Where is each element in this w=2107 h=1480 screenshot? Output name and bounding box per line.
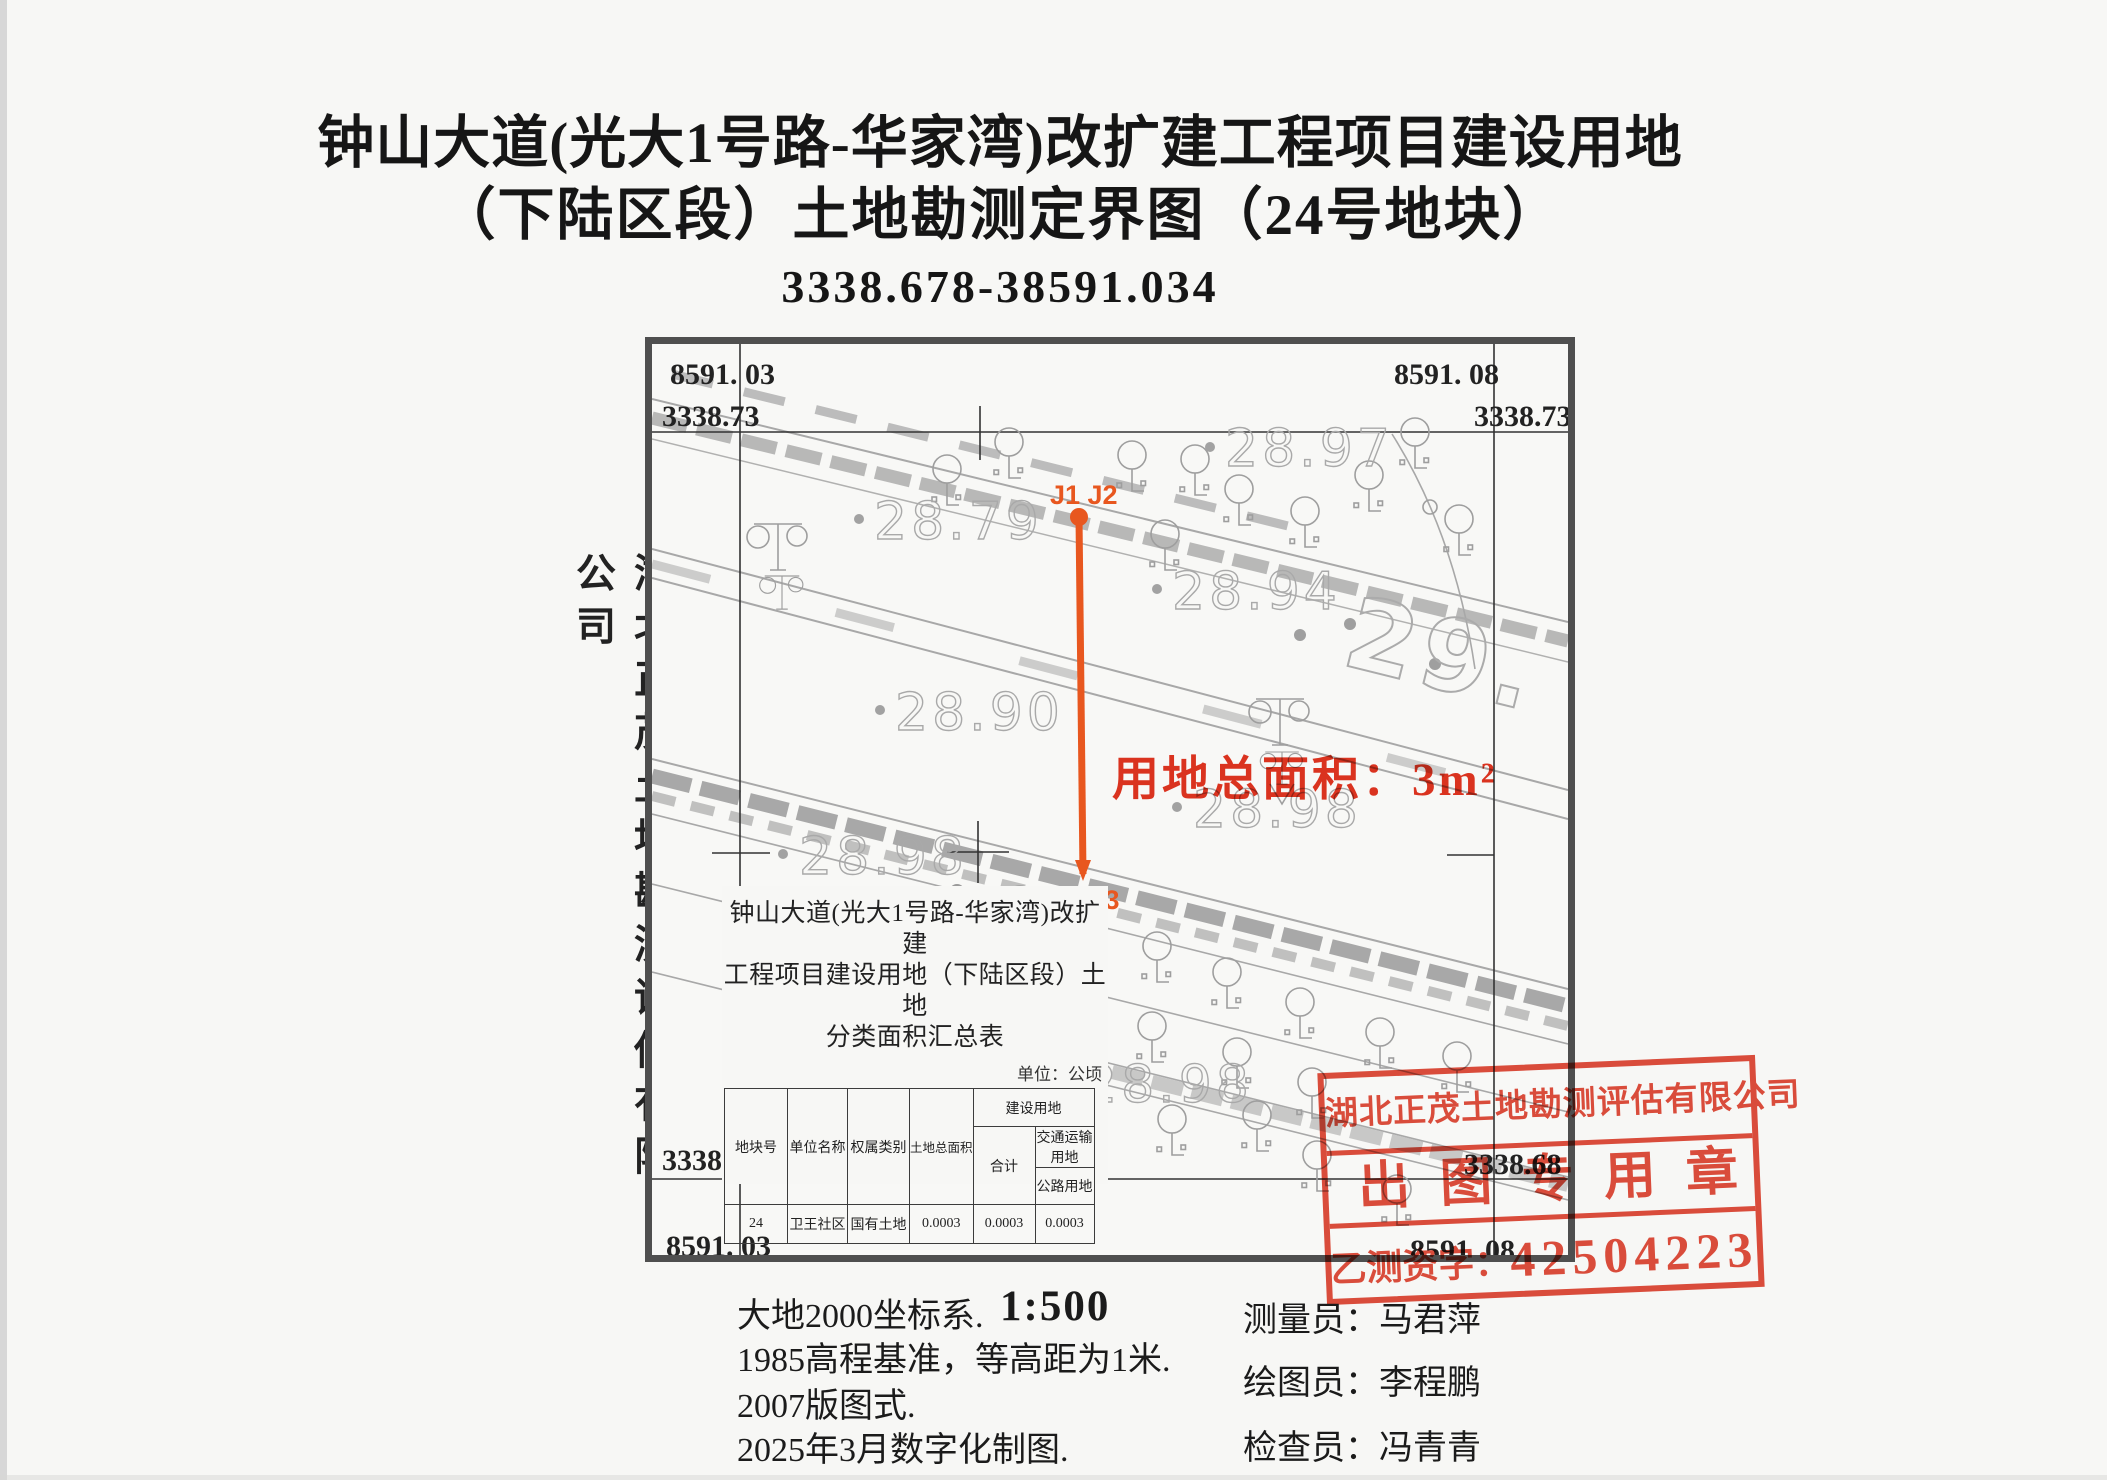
col-header-construction: 建设用地 — [973, 1089, 1094, 1127]
svg-text:28.97: 28.97 — [1225, 419, 1394, 479]
elevation-point: 28.90 — [875, 683, 1064, 743]
cell-total-area: 0.0003 — [910, 1205, 974, 1244]
corner-tr-easting: 8591. 08 — [1394, 358, 1499, 391]
svg-text:28.94: 28.94 — [1172, 562, 1341, 622]
credit-surveyor: 测量员：马君萍 — [1243, 1292, 1481, 1341]
table-title-line-2: 工程项目建设用地（下陆区段）土地 — [722, 960, 1108, 1022]
table-row: 24 卫王社区 国有土地 0.0003 0.0003 0.0003 — [725, 1205, 1095, 1244]
col-header-road: 公路用地 — [1035, 1168, 1094, 1205]
stamp-cert-number: 42504223 — [1509, 1219, 1759, 1287]
note-map-style: 2007版图式. — [737, 1378, 916, 1427]
col-header-parcel: 地块号 — [725, 1089, 788, 1205]
elevation-point: 28.97 — [1205, 419, 1394, 479]
boundary-point-label-top: J1 J2 — [1050, 480, 1118, 510]
cell-unit-name: 卫王社区 — [788, 1205, 848, 1244]
scan-edge-artifact-bottom — [0, 1475, 2107, 1480]
elevation-point: 28.94 — [1152, 562, 1341, 622]
col-header-unit-name: 单位名称 — [788, 1089, 848, 1205]
credit-checker: 检查员：冯青青 — [1243, 1420, 1481, 1469]
area-summary-block: 钟山大道(光大1号路-华家湾)改扩建 工程项目建设用地（下陆区段）土地 分类面积… — [722, 886, 1108, 1184]
cell-parcel: 24 — [725, 1205, 788, 1244]
svg-text:28.90: 28.90 — [895, 683, 1064, 743]
cell-subtotal: 0.0003 — [973, 1205, 1035, 1244]
title-line-1: 钟山大道(光大1号路-华家湾)改扩建工程项目建设用地 — [0, 108, 2000, 180]
official-stamp: 湖北正茂土地勘测评估有限公司 出图专用章 乙测资字： 42504223 — [1317, 1055, 1764, 1305]
title-line-2: （下陆区段）土地勘测定界图（24号地块） — [0, 180, 2000, 252]
elevation-point: 28.98 — [778, 827, 968, 887]
corner-tl-northing: 3338.73 — [662, 400, 760, 433]
cell-road-area: 0.0003 — [1035, 1205, 1094, 1244]
col-header-subtotal: 合计 — [973, 1127, 1035, 1205]
map-scale: 1:500 — [1000, 1282, 1110, 1331]
elevation-point: 28.79 — [854, 492, 1043, 552]
table-title-line-1: 钟山大道(光大1号路-华家湾)改扩建 — [722, 898, 1108, 960]
table-title-line-3: 分类面积汇总表 — [722, 1022, 1108, 1053]
svg-text:28.79: 28.79 — [874, 492, 1043, 552]
cell-ownership: 国有土地 — [848, 1205, 910, 1244]
col-header-transport: 交通运输用地 — [1035, 1127, 1094, 1168]
svg-text:28.98: 28.98 — [799, 827, 968, 887]
note-coordinate-system: 大地2000坐标系. — [737, 1288, 984, 1337]
credit-drafter: 绘图员：李程鹏 — [1243, 1355, 1481, 1404]
table-unit-note: 单位：公顷 — [722, 1060, 1102, 1085]
title-sheet-number: 3338.678-38591.034 — [0, 258, 2000, 316]
svg-text:28.98: 28.98 — [1084, 1055, 1253, 1115]
total-area-note: 用地总面积：3m² — [1112, 740, 1498, 809]
drawing-title: 钟山大道(光大1号路-华家湾)改扩建工程项目建设用地 （下陆区段）土地勘测定界图… — [0, 108, 2000, 316]
note-datum: 1985高程基准，等高距为1米. — [737, 1332, 1171, 1381]
corner-tr-northing: 3338.73 — [1474, 400, 1568, 433]
elevation-point: 28.98 — [1084, 1055, 1253, 1115]
stamp-cert-label: 乙测资字： — [1329, 1233, 1511, 1292]
col-header-ownership: 权属类别 — [848, 1089, 910, 1205]
area-summary-table: 地块号 单位名称 权属类别 土地总面积 建设用地 合计 交通运输用地 公路用地 … — [724, 1088, 1095, 1244]
corner-tl-easting: 8591. 03 — [670, 358, 775, 391]
note-production-date: 2025年3月数字化制图. — [737, 1422, 1069, 1471]
col-header-total-area: 土地总面积 — [910, 1089, 974, 1205]
big-contour-label: 29. — [1334, 574, 1552, 735]
